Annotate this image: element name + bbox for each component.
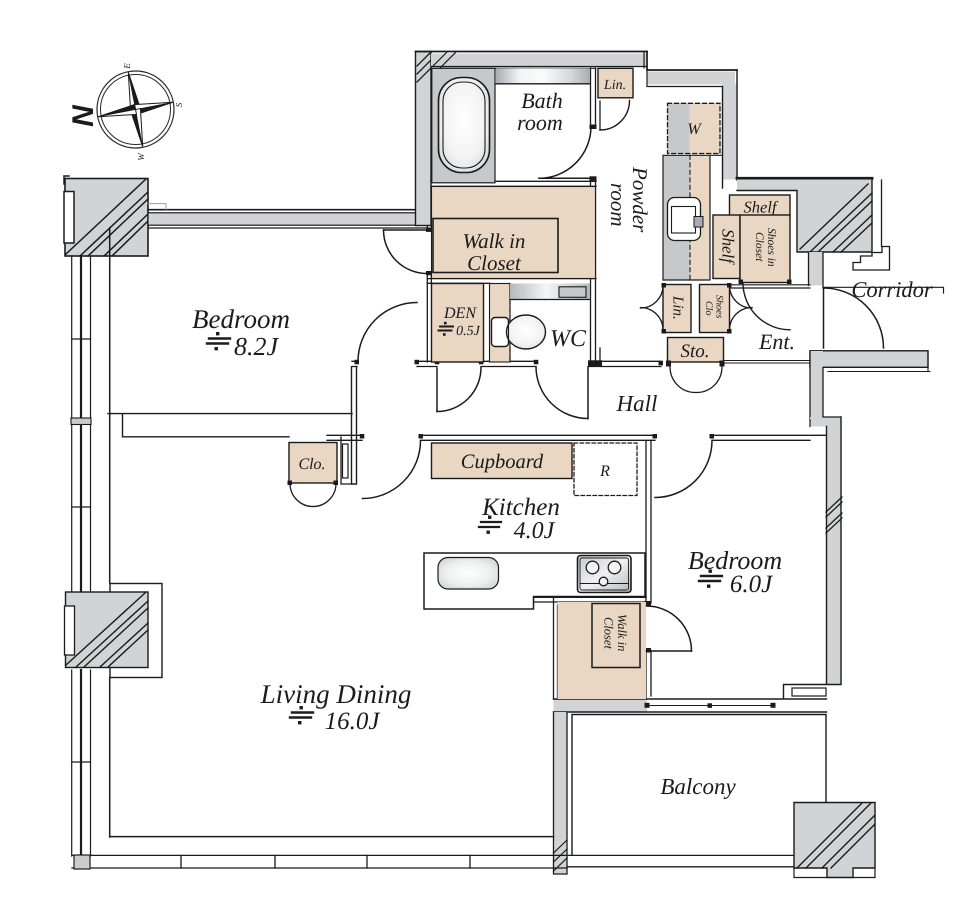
svg-text:WC: WC: [550, 326, 587, 352]
svg-text:Walk in: Walk in: [463, 229, 526, 253]
svg-text:DEN: DEN: [443, 305, 477, 322]
svg-text:Lin.: Lin.: [603, 78, 626, 93]
svg-text:Closet: Closet: [467, 251, 522, 275]
svg-text:Sto.: Sto.: [680, 341, 709, 362]
svg-text:Cupboard: Cupboard: [461, 451, 544, 473]
svg-text:Shelf: Shelf: [744, 198, 779, 217]
svg-text:Balcony: Balcony: [660, 774, 736, 799]
svg-text:Living Dining: Living Dining: [260, 679, 412, 709]
svg-text:R: R: [599, 463, 610, 480]
svg-text:Closet: Closet: [602, 617, 616, 649]
svg-text:Corridor: Corridor: [851, 277, 933, 302]
svg-text:W: W: [687, 121, 702, 138]
svg-text:6.0J: 6.0J: [730, 571, 774, 598]
svg-text:S: S: [174, 102, 184, 107]
svg-text:16.0J: 16.0J: [325, 708, 382, 735]
svg-text:4.0J: 4.0J: [514, 518, 556, 544]
svg-text:Walk in: Walk in: [615, 614, 629, 651]
svg-text:Bedroom: Bedroom: [192, 304, 290, 334]
svg-text:Closet: Closet: [753, 232, 765, 262]
svg-text:Clo.: Clo.: [298, 456, 325, 473]
svg-text:room: room: [606, 183, 630, 227]
svg-text:Clo: Clo: [703, 301, 714, 315]
svg-text:8.2J: 8.2J: [234, 332, 280, 361]
svg-text:E: E: [122, 63, 132, 70]
svg-text:0.5J: 0.5J: [456, 324, 481, 339]
svg-text:Powder: Powder: [628, 166, 652, 233]
svg-text:Lin.: Lin.: [670, 295, 686, 320]
svg-text:Kitchen: Kitchen: [481, 494, 560, 521]
svg-text:Ent.: Ent.: [758, 329, 795, 354]
svg-text:N: N: [67, 104, 100, 127]
svg-text:Hall: Hall: [616, 391, 658, 416]
svg-text:room: room: [517, 110, 563, 135]
svg-text:Shoes in: Shoes in: [765, 228, 777, 267]
svg-text:Shelf: Shelf: [719, 229, 738, 265]
svg-text:Shoes: Shoes: [714, 295, 725, 318]
